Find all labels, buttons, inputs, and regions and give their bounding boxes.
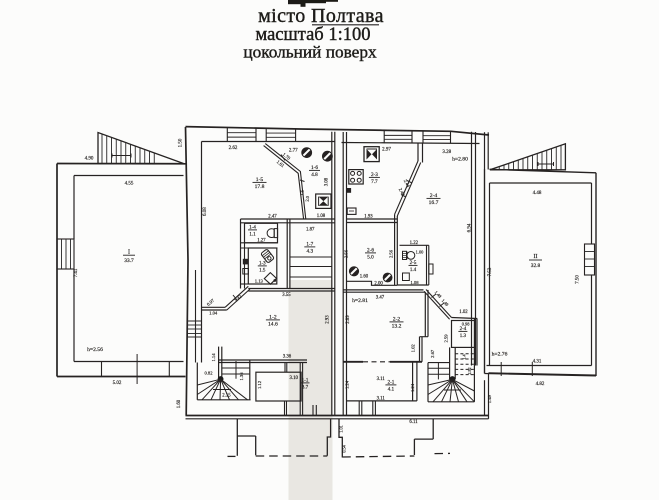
svg-text:h=2.56: h=2.56 (87, 347, 103, 353)
svg-text:6.94: 6.94 (467, 223, 472, 232)
svg-text:h=2.76: h=2.76 (492, 352, 508, 358)
svg-text:1.60: 1.60 (360, 275, 369, 280)
svg-text:1.14: 1.14 (211, 353, 216, 362)
svg-text:7.50: 7.50 (576, 275, 581, 284)
svg-text:1.02: 1.02 (459, 310, 468, 315)
svg-text:32.8: 32.8 (531, 263, 541, 269)
svg-text:2.93: 2.93 (326, 315, 331, 324)
svg-text:II: II (534, 254, 538, 260)
svg-text:2.92: 2.92 (467, 367, 472, 374)
svg-text:h=2.80: h=2.80 (452, 157, 468, 163)
svg-text:4.90: 4.90 (85, 157, 94, 162)
svg-text:1.22: 1.22 (410, 241, 419, 246)
svg-text:1.24: 1.24 (410, 383, 415, 392)
svg-text:I: I (128, 250, 130, 256)
svg-text:1.08: 1.08 (317, 214, 326, 219)
svg-text:1.01: 1.01 (339, 425, 344, 433)
svg-text:6.08: 6.08 (203, 207, 208, 216)
svg-text:3.11: 3.11 (377, 377, 386, 382)
svg-text:6.11: 6.11 (409, 420, 418, 425)
svg-text:3.7: 3.7 (302, 386, 309, 391)
svg-text:7.53: 7.53 (488, 267, 493, 276)
svg-text:4.3: 4.3 (307, 249, 314, 255)
svg-text:2.15: 2.15 (222, 394, 231, 399)
svg-text:1.04: 1.04 (209, 311, 218, 316)
svg-text:3.36: 3.36 (283, 355, 292, 360)
svg-text:цокольний поверх: цокольний поверх (243, 43, 377, 62)
svg-text:2.89: 2.89 (346, 315, 351, 324)
svg-text:3.11: 3.11 (377, 396, 386, 401)
svg-text:1.4: 1.4 (410, 268, 417, 273)
svg-text:4.1: 4.1 (388, 387, 395, 393)
svg-text:4.55: 4.55 (125, 182, 134, 187)
svg-text:h=2.81: h=2.81 (352, 298, 368, 304)
svg-text:2.97: 2.97 (382, 148, 391, 153)
svg-text:1.1: 1.1 (249, 233, 256, 238)
svg-text:1.02: 1.02 (411, 344, 416, 353)
svg-text:2.77: 2.77 (289, 149, 298, 154)
svg-text:1.93: 1.93 (364, 215, 373, 220)
svg-text:5.02: 5.02 (113, 381, 122, 386)
svg-text:3.55: 3.55 (282, 293, 291, 298)
svg-text:1.4: 1.4 (462, 353, 467, 359)
svg-text:33.7: 33.7 (124, 258, 134, 264)
svg-text:0.54: 0.54 (341, 444, 346, 452)
svg-text:0.98: 0.98 (462, 321, 470, 326)
svg-text:1.24: 1.24 (344, 380, 349, 389)
svg-text:1.00: 1.00 (416, 250, 424, 255)
svg-text:1.13: 1.13 (255, 279, 264, 284)
svg-text:1.5: 1.5 (259, 269, 266, 274)
svg-text:7.41: 7.41 (74, 268, 79, 277)
svg-text:1.08: 1.08 (410, 280, 419, 285)
svg-text:1.50: 1.50 (179, 138, 184, 147)
svg-text:3.28: 3.28 (442, 150, 451, 155)
svg-text:місто Полтава: місто Полтава (258, 5, 384, 27)
svg-text:2.00: 2.00 (374, 281, 383, 286)
svg-text:4.31: 4.31 (533, 359, 542, 364)
svg-text:1.49: 1.49 (487, 394, 492, 403)
svg-text:13.2: 13.2 (392, 324, 402, 330)
svg-text:1.12: 1.12 (257, 380, 262, 389)
svg-text:16.7: 16.7 (429, 200, 439, 206)
svg-text:4.8: 4.8 (311, 172, 318, 178)
svg-text:2.62: 2.62 (229, 146, 238, 151)
svg-text:2.47: 2.47 (268, 214, 277, 219)
svg-text:17.8: 17.8 (255, 184, 265, 190)
svg-text:3.47: 3.47 (376, 295, 385, 300)
svg-text:7.7: 7.7 (371, 179, 378, 185)
svg-text:14.6: 14.6 (268, 322, 278, 328)
svg-text:4.82: 4.82 (536, 382, 545, 387)
svg-text:2.59: 2.59 (443, 334, 448, 343)
svg-text:1.87: 1.87 (306, 228, 315, 233)
svg-text:1.36: 1.36 (239, 372, 244, 381)
svg-text:4.48: 4.48 (533, 191, 542, 196)
svg-text:3.10: 3.10 (289, 376, 298, 381)
svg-text:2.56: 2.56 (343, 249, 348, 258)
svg-text:2.56: 2.56 (389, 249, 394, 258)
svg-text:0.82: 0.82 (204, 370, 213, 375)
svg-text:1.60: 1.60 (177, 399, 182, 408)
svg-text:2.67: 2.67 (430, 349, 435, 358)
svg-text:1.3: 1.3 (460, 334, 467, 339)
svg-text:1.27: 1.27 (257, 238, 266, 243)
svg-text:5.0: 5.0 (367, 255, 374, 261)
svg-text:3.08: 3.08 (325, 177, 330, 186)
